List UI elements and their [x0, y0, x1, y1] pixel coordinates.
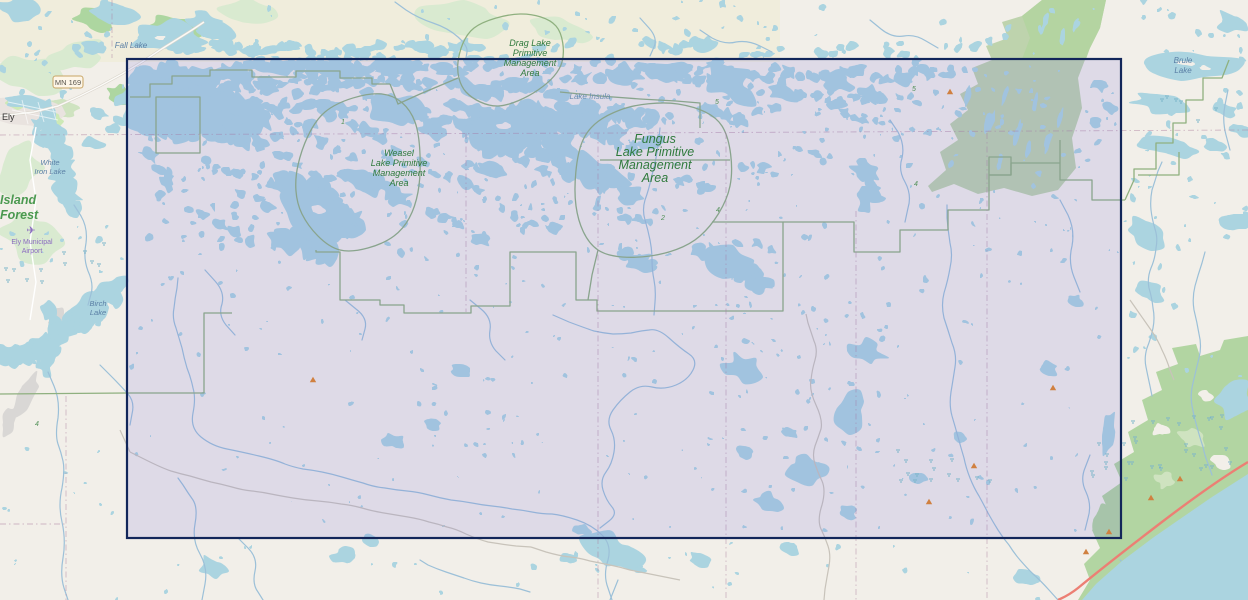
- svg-text:Ely Municipal: Ely Municipal: [11, 239, 53, 246]
- svg-text:Area: Area: [641, 171, 668, 185]
- svg-text:Management: Management: [504, 58, 557, 68]
- svg-text:Airport: Airport: [22, 248, 43, 255]
- svg-text:Fall Lake: Fall Lake: [115, 41, 148, 50]
- svg-text:Ely: Ely: [2, 112, 15, 122]
- svg-text:Management: Management: [619, 158, 692, 172]
- svg-text:Drag Lake: Drag Lake: [509, 38, 551, 48]
- svg-text:4: 4: [716, 207, 720, 214]
- svg-text:1: 1: [341, 119, 345, 126]
- svg-text:Fungus: Fungus: [634, 132, 676, 146]
- svg-text:Weasel: Weasel: [384, 148, 415, 158]
- svg-text:Management: Management: [373, 168, 426, 178]
- svg-text:✈: ✈: [26, 225, 35, 237]
- svg-text:4: 4: [35, 421, 39, 428]
- svg-text:Lake Primitive: Lake Primitive: [616, 145, 695, 159]
- svg-text:Island: Island: [0, 193, 36, 207]
- svg-text:2: 2: [660, 215, 665, 222]
- svg-text:5: 5: [912, 86, 916, 93]
- svg-text:Lake Primitive: Lake Primitive: [371, 158, 428, 168]
- svg-text:Lake: Lake: [1174, 66, 1192, 75]
- svg-text:5: 5: [715, 99, 719, 106]
- svg-text:Brule: Brule: [1174, 56, 1193, 65]
- svg-text:4: 4: [914, 181, 918, 188]
- svg-text:Area: Area: [388, 178, 408, 188]
- svg-text:Primitive: Primitive: [513, 48, 548, 58]
- svg-text:Area: Area: [519, 68, 539, 78]
- svg-text:Iron Lake: Iron Lake: [34, 167, 65, 176]
- svg-text:Lake: Lake: [90, 308, 106, 317]
- svg-text:Forest: Forest: [0, 208, 39, 222]
- svg-text:Lake Insula: Lake Insula: [570, 92, 611, 101]
- svg-text:MN 169: MN 169: [55, 78, 81, 87]
- svg-text:Birch: Birch: [89, 299, 106, 308]
- svg-text:White: White: [40, 158, 59, 167]
